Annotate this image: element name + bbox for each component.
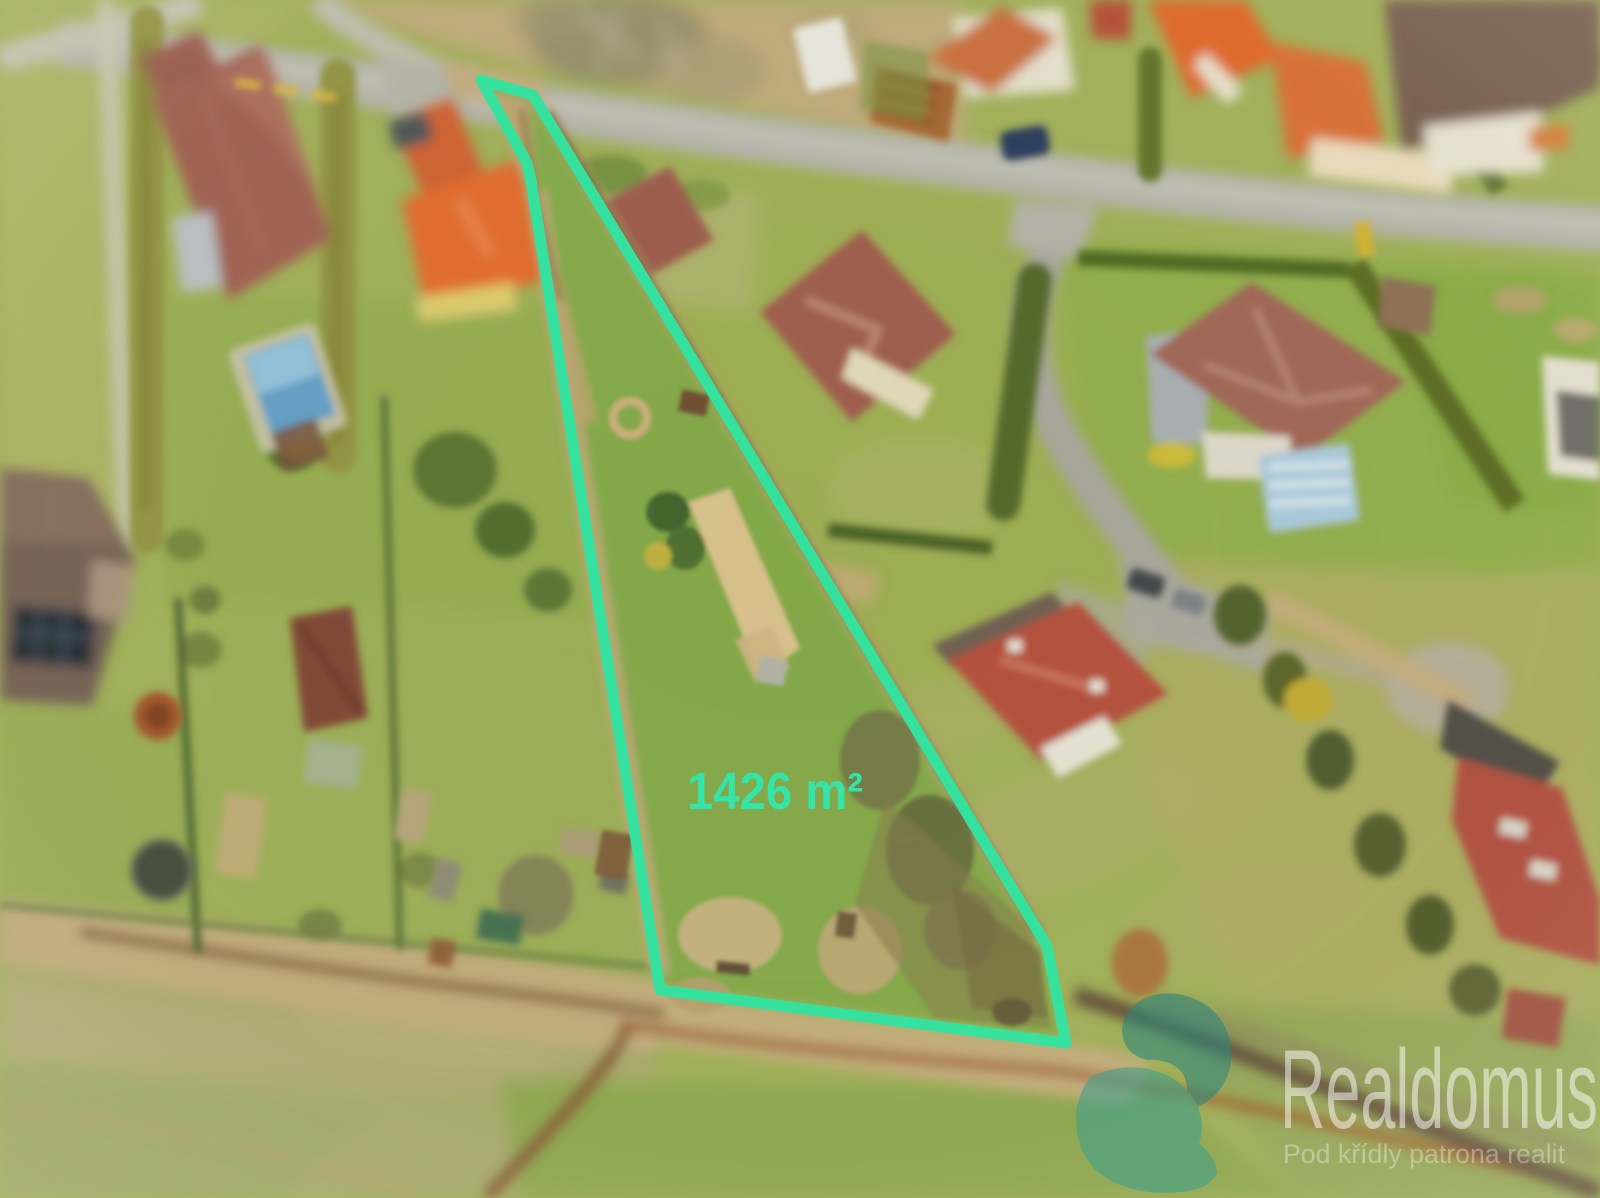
svg-text:Pod křídly patrona realit: Pod křídly patrona realit bbox=[1283, 1139, 1565, 1169]
svg-text:Realdomus: Realdomus bbox=[1280, 1027, 1598, 1152]
